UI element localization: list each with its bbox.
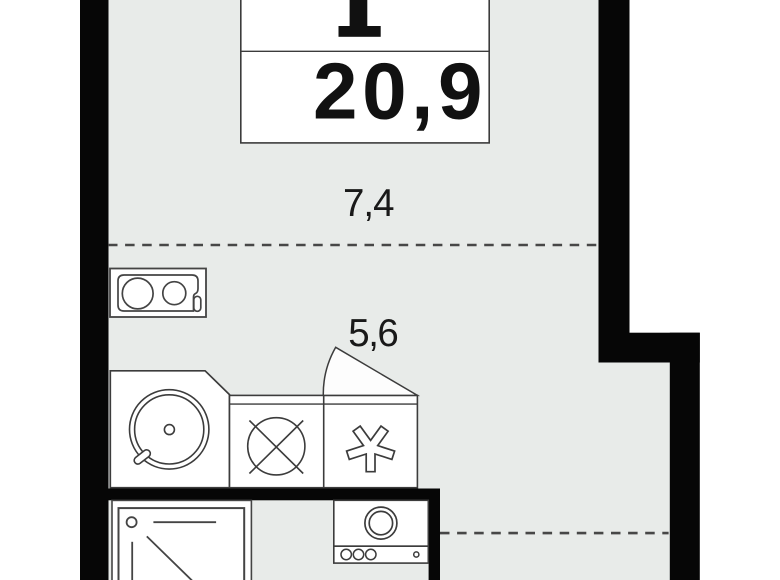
svg-text:20,9: 20,9 — [313, 46, 483, 135]
svg-text:5,6: 5,6 — [348, 312, 399, 355]
svg-text:7,4: 7,4 — [343, 182, 395, 225]
